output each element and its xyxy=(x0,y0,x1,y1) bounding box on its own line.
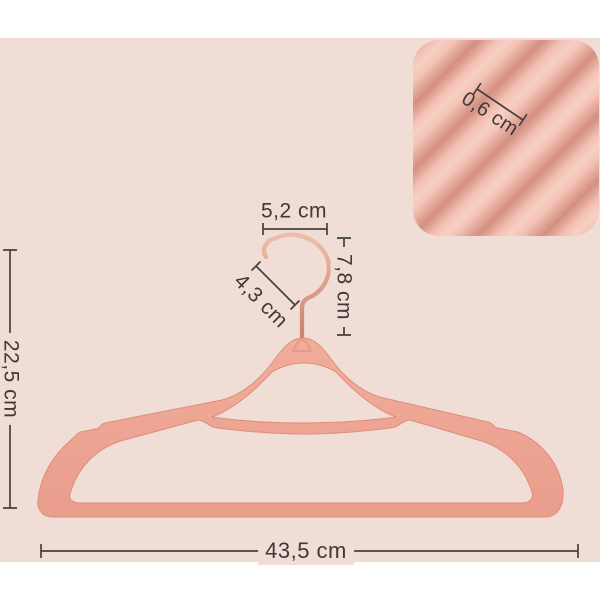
photo-background: 5,2 cm 7,8 cm 4,3 cm 22,5 cm 43,5 cm 0,6… xyxy=(0,38,600,562)
hanger-height-label: 22,5 cm xyxy=(0,333,25,425)
hook-height-label: 7,8 cm xyxy=(331,247,358,327)
hook-width-label: 5,2 cm xyxy=(261,201,327,222)
product-image-canvas: 5,2 cm 7,8 cm 4,3 cm 22,5 cm 43,5 cm 0,6… xyxy=(0,0,600,600)
hanger-body xyxy=(38,338,563,517)
hanger-width-label: 43,5 cm xyxy=(258,537,354,565)
diagram-artwork xyxy=(0,0,600,600)
